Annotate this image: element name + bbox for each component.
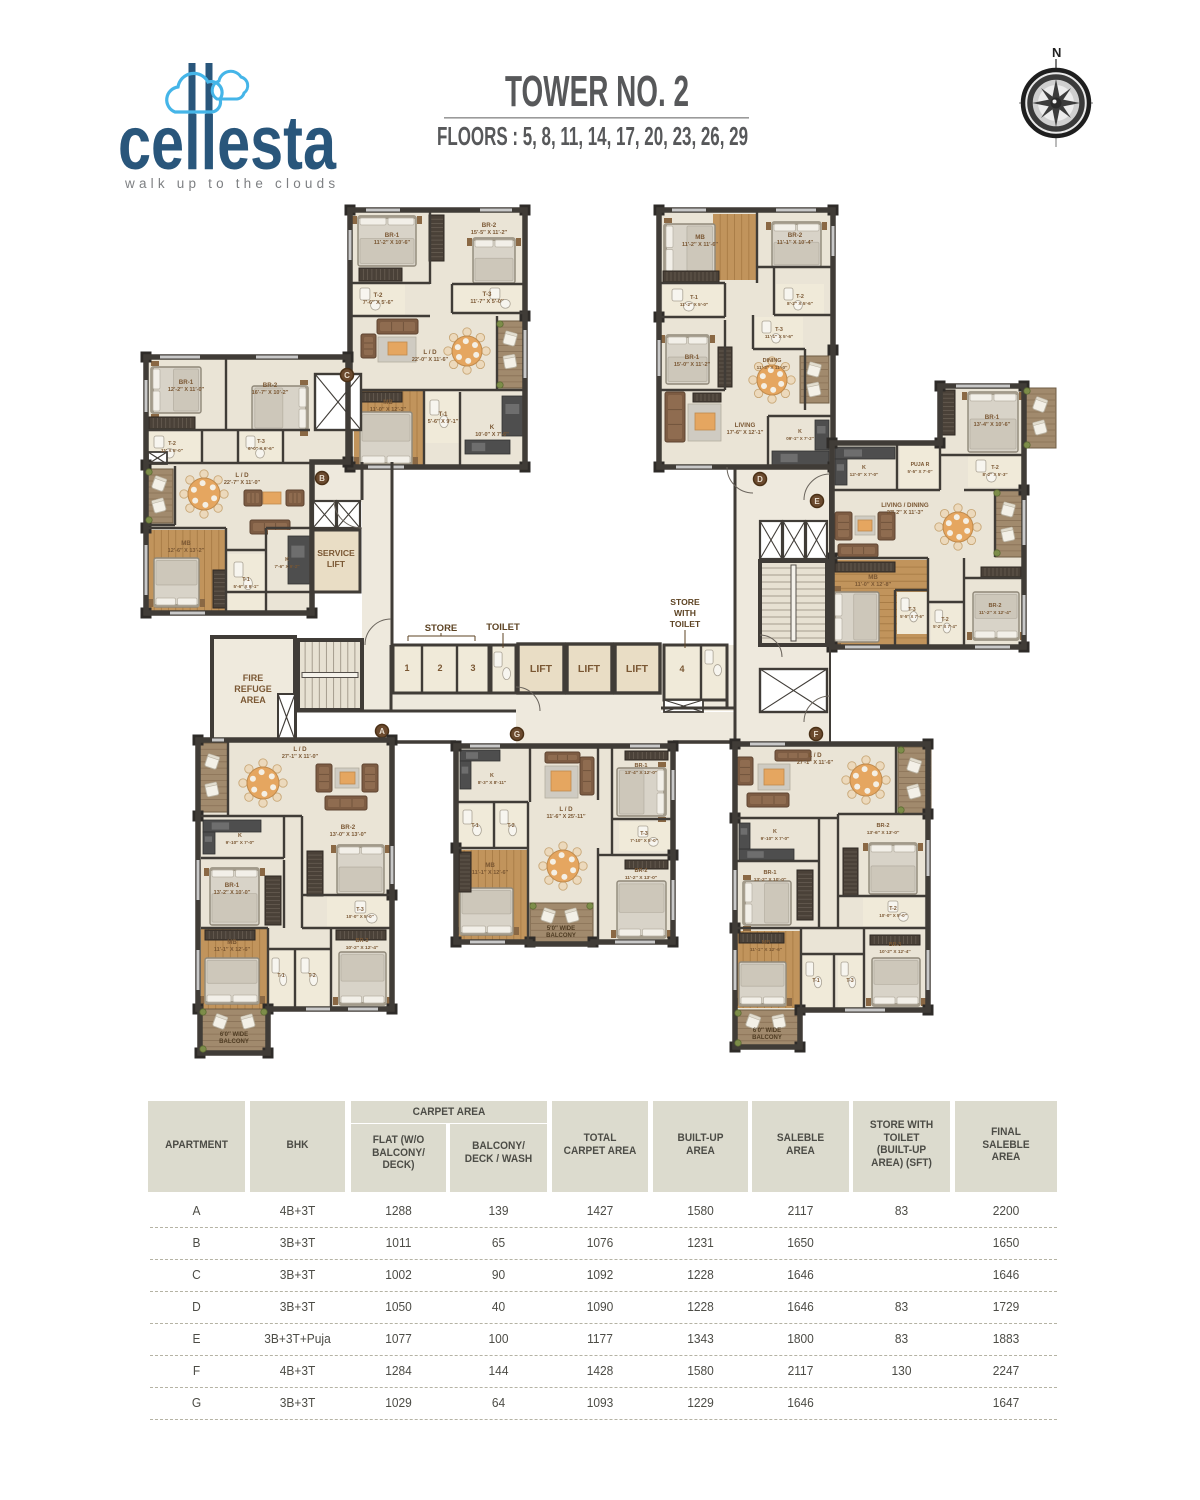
svg-text:G: G bbox=[514, 730, 520, 739]
svg-text:AREA: AREA bbox=[240, 695, 266, 705]
svg-text:L / D: L / D bbox=[559, 806, 573, 813]
svg-text:MB: MB bbox=[227, 939, 237, 946]
svg-text:MB: MB bbox=[181, 540, 191, 547]
svg-text:11′-1″ X 12′-6″: 11′-1″ X 12′-6″ bbox=[750, 947, 783, 953]
svg-text:13′-4″ X 12′-0″: 13′-4″ X 12′-0″ bbox=[625, 770, 658, 776]
svg-text:E: E bbox=[814, 497, 820, 506]
svg-text:27′-1″ X 11′-6″: 27′-1″ X 11′-6″ bbox=[797, 760, 834, 766]
svg-text:LIVING: LIVING bbox=[735, 422, 756, 429]
svg-text:MB: MB bbox=[383, 399, 393, 406]
svg-text:10′-0″ X 5′-0″: 10′-0″ X 5′-0″ bbox=[879, 913, 907, 918]
svg-text:T-2: T-2 bbox=[308, 973, 315, 979]
svg-text:WITH: WITH bbox=[674, 608, 696, 618]
svg-text:11′-2″ X 11′-6″: 11′-2″ X 11′-6″ bbox=[682, 242, 718, 248]
svg-text:11′-0″ X 12′-8″: 11′-0″ X 12′-8″ bbox=[855, 582, 892, 588]
svg-text:REFUGE: REFUGE bbox=[234, 684, 272, 694]
svg-text:BR-1: BR-1 bbox=[985, 414, 1000, 421]
svg-text:K: K bbox=[238, 833, 242, 839]
svg-text:6′0″ WIDE: 6′0″ WIDE bbox=[753, 1028, 781, 1034]
svg-text:T-3: T-3 bbox=[257, 439, 265, 445]
svg-text:13′-2″ X 10′-0″: 13′-2″ X 10′-0″ bbox=[214, 890, 251, 896]
svg-text:LIFT: LIFT bbox=[578, 663, 601, 675]
svg-text:BALCONY: BALCONY bbox=[546, 933, 576, 939]
svg-text:7′-6″ X 9′-2″: 7′-6″ X 9′-2″ bbox=[275, 564, 301, 569]
svg-text:K: K bbox=[490, 424, 495, 431]
svg-text:STORE: STORE bbox=[425, 623, 458, 634]
svg-text:K: K bbox=[798, 429, 802, 435]
svg-text:BR-2: BR-2 bbox=[988, 603, 1001, 609]
svg-text:C: C bbox=[344, 371, 350, 380]
svg-text:9′-10″ X 7′-0″: 9′-10″ X 7′-0″ bbox=[761, 836, 790, 841]
svg-text:T-2: T-2 bbox=[168, 441, 176, 447]
svg-text:BR-1: BR-1 bbox=[634, 763, 647, 769]
svg-text:11′-6″ X 25′-11″: 11′-6″ X 25′-11″ bbox=[546, 814, 585, 820]
svg-text:DINING: DINING bbox=[763, 358, 782, 364]
svg-text:11′-7″ X 5′-0″: 11′-7″ X 5′-0″ bbox=[470, 299, 504, 305]
svg-text:4: 4 bbox=[679, 664, 684, 674]
svg-text:2: 2 bbox=[437, 663, 442, 673]
svg-text:11′-2″ X 10′-6″: 11′-2″ X 10′-6″ bbox=[374, 240, 411, 246]
svg-text:27′-2″ X 11′-3″: 27′-2″ X 11′-3″ bbox=[887, 510, 924, 516]
svg-text:13′-6″ X 13′-0″: 13′-6″ X 13′-0″ bbox=[867, 830, 900, 836]
svg-text:15′-5″ X 11′-2″: 15′-5″ X 11′-2″ bbox=[471, 230, 508, 236]
svg-text:B: B bbox=[319, 474, 325, 483]
svg-text:MB: MB bbox=[762, 940, 771, 946]
svg-text:BR-1: BR-1 bbox=[763, 870, 776, 876]
svg-text:BR-2: BR-2 bbox=[263, 382, 278, 389]
svg-text:T-2: T-2 bbox=[374, 292, 383, 299]
svg-text:27′-1″ X 11′-0″: 27′-1″ X 11′-0″ bbox=[282, 754, 319, 760]
svg-text:K: K bbox=[285, 557, 289, 563]
svg-text:K: K bbox=[773, 829, 777, 835]
svg-text:BR-2: BR-2 bbox=[482, 222, 497, 229]
svg-text:LIFT: LIFT bbox=[626, 663, 649, 675]
svg-text:L / D: L / D bbox=[235, 472, 249, 479]
svg-text:T-3: T-3 bbox=[775, 327, 783, 333]
svg-text:10′-2″ X 12′-4″: 10′-2″ X 12′-4″ bbox=[346, 945, 379, 951]
svg-text:K: K bbox=[490, 773, 494, 779]
svg-text:11′-1″ X 12′-6″: 11′-1″ X 12′-6″ bbox=[472, 870, 509, 876]
svg-text:T-3: T-3 bbox=[908, 607, 915, 613]
svg-text:11′-1″ X 10′-4″: 11′-1″ X 10′-4″ bbox=[777, 240, 814, 246]
svg-text:13′-4″ X 10′-6″: 13′-4″ X 10′-6″ bbox=[974, 422, 1011, 428]
svg-text:BR-2: BR-2 bbox=[634, 868, 647, 874]
svg-text:1: 1 bbox=[404, 663, 409, 673]
svg-text:T-2: T-2 bbox=[889, 906, 897, 912]
svg-text:T-2: T-2 bbox=[991, 465, 999, 471]
svg-text:SERVICE: SERVICE bbox=[317, 548, 355, 558]
svg-text:K: K bbox=[862, 465, 866, 471]
svg-text:7′-6″ X 5′-6″: 7′-6″ X 5′-6″ bbox=[363, 300, 394, 306]
svg-text:11′-2″ X 12′-4″: 11′-2″ X 12′-4″ bbox=[979, 610, 1012, 616]
svg-text:T-1: T-1 bbox=[242, 577, 250, 583]
svg-text:T-1: T-1 bbox=[439, 411, 448, 418]
svg-text:F: F bbox=[814, 730, 819, 739]
svg-text:T-3: T-3 bbox=[640, 831, 648, 837]
svg-text:11′-0″ X 12′-3″: 11′-0″ X 12′-3″ bbox=[370, 407, 407, 413]
svg-text:7′-10″ X 5′-0″: 7′-10″ X 5′-0″ bbox=[630, 838, 658, 843]
svg-text:BR-1: BR-1 bbox=[385, 232, 400, 239]
svg-text:15′-0″ X 11′-2″: 15′-0″ X 11′-2″ bbox=[674, 362, 711, 368]
svg-text:11′ X 5′-0″: 11′ X 5′-0″ bbox=[161, 448, 184, 453]
svg-text:6′0″ WIDE: 6′0″ WIDE bbox=[220, 1032, 248, 1038]
svg-text:3: 3 bbox=[470, 663, 475, 673]
svg-text:T-2: T-2 bbox=[507, 823, 514, 829]
svg-text:5′-5″ X 7′-0″: 5′-5″ X 7′-0″ bbox=[908, 469, 934, 474]
svg-text:BR-2: BR-2 bbox=[788, 232, 803, 239]
svg-text:STORE: STORE bbox=[670, 597, 700, 607]
svg-text:09′-1″ X 7′-2″: 09′-1″ X 7′-2″ bbox=[786, 436, 814, 441]
svg-text:11′-3″ X 11′-0″: 11′-3″ X 11′-0″ bbox=[757, 365, 788, 370]
svg-text:L / D: L / D bbox=[293, 746, 307, 753]
svg-text:LIFT: LIFT bbox=[327, 559, 346, 569]
svg-text:16′-7″ X 10′-2″: 16′-7″ X 10′-2″ bbox=[252, 390, 289, 396]
svg-text:12′-2″ X 11′-0″: 12′-2″ X 11′-0″ bbox=[168, 387, 205, 393]
svg-text:5′-2″ X 7′-4″: 5′-2″ X 7′-4″ bbox=[933, 624, 957, 629]
svg-text:T-3: T-3 bbox=[846, 978, 853, 984]
svg-text:MB: MB bbox=[868, 574, 878, 581]
svg-text:BR-2: BR-2 bbox=[341, 824, 356, 831]
svg-text:12′-6″ X 13′-2″: 12′-6″ X 13′-2″ bbox=[168, 548, 205, 554]
svg-text:LIVING / DINING: LIVING / DINING bbox=[881, 502, 929, 509]
svg-text:13′-2″ X 10′-0″: 13′-2″ X 10′-0″ bbox=[754, 877, 787, 883]
svg-text:5′-6″ X 9′-1″: 5′-6″ X 9′-1″ bbox=[428, 419, 459, 425]
svg-text:L / D: L / D bbox=[423, 349, 437, 356]
svg-text:MB: MB bbox=[485, 862, 495, 869]
svg-text:T-2: T-2 bbox=[941, 617, 948, 623]
svg-text:BR-3: BR-3 bbox=[355, 938, 368, 944]
svg-text:T-1: T-1 bbox=[812, 978, 819, 984]
svg-text:11′-2″ X 5′-0″: 11′-2″ X 5′-0″ bbox=[680, 302, 709, 307]
svg-text:5′0″ WIDE: 5′0″ WIDE bbox=[547, 926, 575, 932]
svg-text:BALCONY: BALCONY bbox=[752, 1035, 782, 1041]
svg-text:11′-1″ X 5′-6″: 11′-1″ X 5′-6″ bbox=[765, 334, 794, 339]
svg-text:T-1: T-1 bbox=[277, 973, 284, 979]
svg-text:8′-3″ X 8′-11″: 8′-3″ X 8′-11″ bbox=[478, 780, 507, 785]
svg-text:FIRE: FIRE bbox=[243, 673, 264, 683]
svg-text:BR-1: BR-1 bbox=[225, 882, 240, 889]
svg-text:A: A bbox=[379, 727, 385, 736]
svg-text:10′-0″ X 5′-0″: 10′-0″ X 5′-0″ bbox=[346, 914, 374, 919]
svg-text:5′-6″ X 9′-1″: 5′-6″ X 9′-1″ bbox=[234, 584, 260, 589]
svg-text:BR-1: BR-1 bbox=[179, 379, 194, 386]
svg-text:TOILET: TOILET bbox=[670, 619, 701, 629]
svg-text:11′-2″ X 13′-0″: 11′-2″ X 13′-0″ bbox=[625, 875, 658, 881]
svg-text:BR-3: BR-3 bbox=[889, 942, 902, 948]
svg-text:5′-5″ X 7′-6″: 5′-5″ X 7′-6″ bbox=[900, 614, 924, 619]
svg-text:8′-2″ X 5′-3″: 8′-2″ X 5′-3″ bbox=[983, 472, 1009, 477]
svg-text:D: D bbox=[757, 475, 763, 484]
svg-text:6′-0″ X 6′-6″: 6′-0″ X 6′-6″ bbox=[248, 446, 275, 451]
svg-text:PUJA R: PUJA R bbox=[911, 462, 930, 468]
svg-text:10′-0″ X 7′-6″: 10′-0″ X 7′-6″ bbox=[475, 432, 509, 438]
svg-text:MB: MB bbox=[695, 234, 705, 241]
svg-text:17′-6″ X 12′-1″: 17′-6″ X 12′-1″ bbox=[727, 430, 764, 436]
svg-text:T-1: T-1 bbox=[471, 823, 478, 829]
svg-text:LIFT: LIFT bbox=[530, 663, 553, 675]
svg-text:L / D: L / D bbox=[808, 752, 822, 759]
svg-text:22′-7″ X 11′-0″: 22′-7″ X 11′-0″ bbox=[224, 480, 261, 486]
svg-text:BALCONY: BALCONY bbox=[219, 1039, 249, 1045]
svg-text:10′-2″ X 12′-4″: 10′-2″ X 12′-4″ bbox=[879, 949, 911, 954]
svg-text:9′-10″ X 7′-0″: 9′-10″ X 7′-0″ bbox=[226, 840, 255, 845]
svg-text:T-3: T-3 bbox=[356, 907, 364, 913]
svg-text:12′-0″ X 7′-0″: 12′-0″ X 7′-0″ bbox=[850, 472, 879, 477]
svg-text:22′-0″ X 11′-6″: 22′-0″ X 11′-6″ bbox=[412, 357, 449, 363]
svg-text:T-2: T-2 bbox=[796, 294, 804, 300]
svg-text:TOILET: TOILET bbox=[486, 622, 520, 633]
svg-text:8′-2″ X 5′-6″: 8′-2″ X 5′-6″ bbox=[787, 301, 814, 306]
svg-text:T-1: T-1 bbox=[690, 295, 698, 301]
svg-text:BR-1: BR-1 bbox=[685, 354, 700, 361]
svg-text:BR-2: BR-2 bbox=[876, 823, 889, 829]
svg-text:11′-1″ X 12′-6″: 11′-1″ X 12′-6″ bbox=[214, 947, 251, 953]
svg-text:T-3: T-3 bbox=[483, 291, 492, 298]
svg-text:13′-0″ X 13′-0″: 13′-0″ X 13′-0″ bbox=[330, 832, 367, 838]
